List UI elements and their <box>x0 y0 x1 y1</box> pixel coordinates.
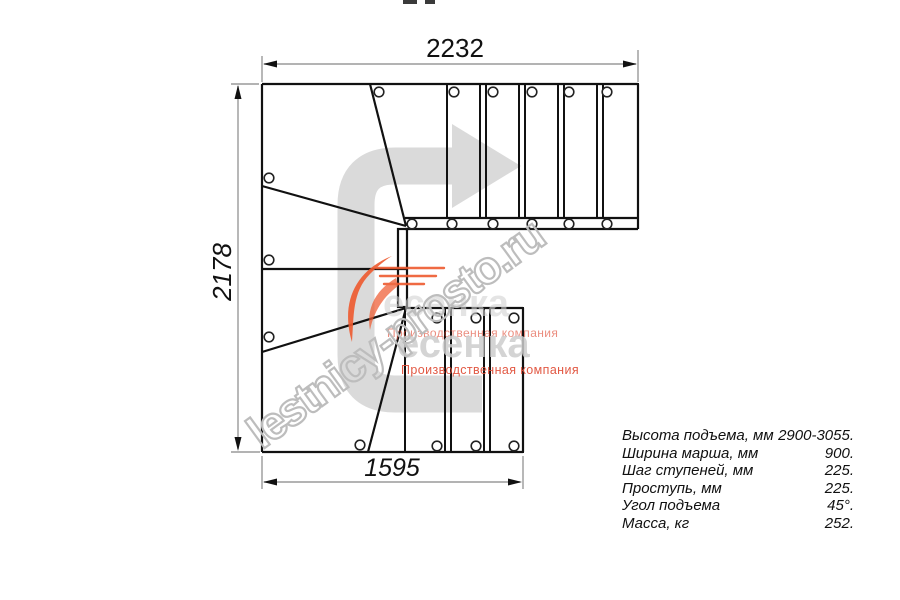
screw-hole <box>355 440 365 450</box>
left-dimension-label: 2178 <box>207 243 237 302</box>
arrowhead <box>263 61 277 68</box>
spec-row: Угол подъема 45°. <box>622 497 854 515</box>
screw-hole <box>432 441 442 451</box>
screw-hole <box>449 87 459 97</box>
spec-label: Шаг ступеней, мм <box>622 462 753 480</box>
spec-row: Высота подъема, мм 2900-3055. <box>622 427 854 445</box>
screw-hole <box>488 87 498 97</box>
spec-label: Проступь, мм <box>622 480 722 498</box>
brand-subtitle: Производственная компания <box>401 363 579 377</box>
spec-value: 225. <box>825 480 854 498</box>
arrowhead <box>508 479 522 486</box>
spec-value: 45°. <box>827 497 854 515</box>
spec-value: 252. <box>825 515 854 533</box>
screw-hole <box>527 87 537 97</box>
screw-hole <box>471 441 481 451</box>
screw-hole <box>602 219 612 229</box>
spec-label: Угол подъема <box>622 497 720 515</box>
tread <box>525 84 558 218</box>
spec-label: Ширина марша, мм <box>622 445 758 463</box>
spec-value: 225. <box>825 462 854 480</box>
spec-value: 2900-3055. <box>778 427 854 445</box>
bottom-dimension-label: 1595 <box>364 454 420 482</box>
cropped-title-fragment <box>403 0 435 4</box>
staircase-drawing-page: 2232 2178 1595 есенка Производственная к… <box>0 0 900 600</box>
tread <box>564 84 597 218</box>
screw-hole <box>264 332 274 342</box>
screw-hole <box>602 87 612 97</box>
arrowhead <box>235 85 242 99</box>
screw-hole <box>264 255 274 265</box>
screw-hole <box>509 441 519 451</box>
screw-hole <box>447 219 457 229</box>
spec-row: Шаг ступеней, мм 225. <box>622 462 854 480</box>
top-dimension-label: 2232 <box>426 33 484 63</box>
winder-line <box>262 186 406 226</box>
spec-label: Масса, кг <box>622 515 689 533</box>
spec-row: Масса, кг 252. <box>622 515 854 533</box>
screw-hole <box>564 87 574 97</box>
arrowhead <box>263 479 277 486</box>
screw-hole <box>374 87 384 97</box>
arrowhead <box>235 437 242 451</box>
spec-row: Ширина марша, мм 900. <box>622 445 854 463</box>
arrowhead <box>623 61 637 68</box>
spec-row: Проступь, мм 225. <box>622 480 854 498</box>
screw-hole <box>264 173 274 183</box>
tread <box>603 84 638 218</box>
spec-table: Высота подъема, мм 2900-3055. Ширина мар… <box>622 427 854 532</box>
spec-label: Высота подъема, мм <box>622 427 774 445</box>
screw-hole <box>407 219 417 229</box>
screw-hole <box>564 219 574 229</box>
spec-value: 900. <box>825 445 854 463</box>
